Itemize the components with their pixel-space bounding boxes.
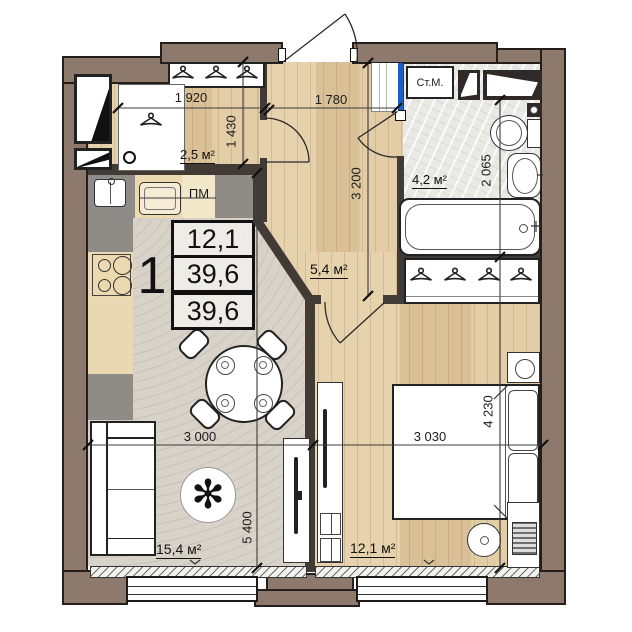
- door-swings: [265, 14, 397, 343]
- hanger-icon: [237, 66, 258, 78]
- hanger-icon: [445, 268, 466, 280]
- bath-door-leaf: [358, 112, 397, 138]
- living-area-label: 15,4 м²: [156, 541, 201, 559]
- corridor-area-label: 5,4 м²: [310, 261, 348, 279]
- bedroom-door-arc: [325, 302, 340, 343]
- dim-hall-depth: 1 430: [224, 97, 239, 167]
- bath-door-arc: [358, 138, 397, 157]
- dim-bath-depth: 2 065: [479, 136, 494, 206]
- hanger-icon: [173, 66, 194, 78]
- hanger-icon: [479, 268, 500, 280]
- bathroom-area-label: 4,2 м²: [412, 172, 447, 189]
- hallway-area-label: 2,5 м²: [180, 147, 215, 164]
- hall-door-arc: [265, 118, 309, 162]
- entry-door-leaf: [283, 14, 345, 62]
- entry-door-arc: [345, 14, 357, 62]
- dimension-ticks: [83, 57, 548, 573]
- dim-bedroom-length: 4 230: [481, 377, 496, 447]
- dim-corridor-length: 3 200: [349, 149, 364, 219]
- dim-hall-width: 1 920: [156, 90, 226, 105]
- hanger-icon: [141, 113, 162, 125]
- dim-living-width: 3 000: [165, 429, 235, 444]
- hanger-icon: [206, 66, 227, 78]
- hanger-icon: [411, 268, 432, 280]
- dim-corridor-width: 1 780: [296, 92, 366, 107]
- dishwasher-label: ПМ: [184, 186, 214, 201]
- wall-diagonal: [256, 219, 311, 301]
- bedroom-door-leaf: [340, 302, 385, 343]
- floor-plan: ПМ 1 12,1 39,6 39,6 ✻: [0, 0, 632, 632]
- hanger-icon: [511, 268, 532, 280]
- bedroom-area-label: 12,1 м²: [350, 540, 395, 558]
- dimension-lines: [88, 62, 543, 568]
- dim-bedroom-width: 3 030: [395, 429, 465, 444]
- dim-living-length: 5 400: [240, 493, 255, 563]
